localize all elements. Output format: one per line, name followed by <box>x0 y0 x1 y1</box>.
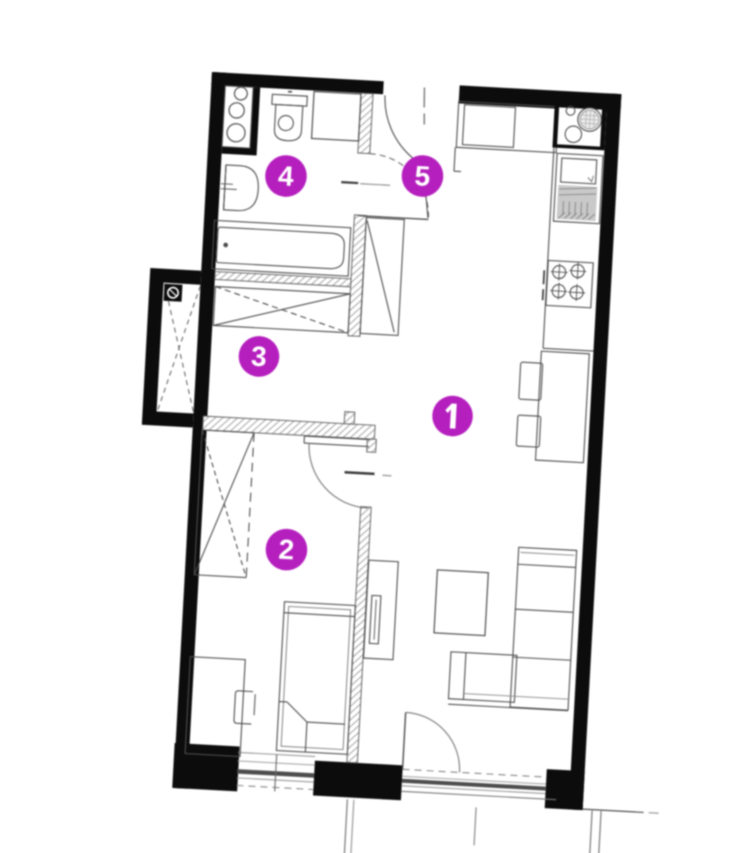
svg-text:4: 4 <box>277 160 295 192</box>
svg-text:5: 5 <box>414 160 431 192</box>
svg-text:2: 2 <box>278 534 295 566</box>
svg-text:3: 3 <box>250 341 267 373</box>
